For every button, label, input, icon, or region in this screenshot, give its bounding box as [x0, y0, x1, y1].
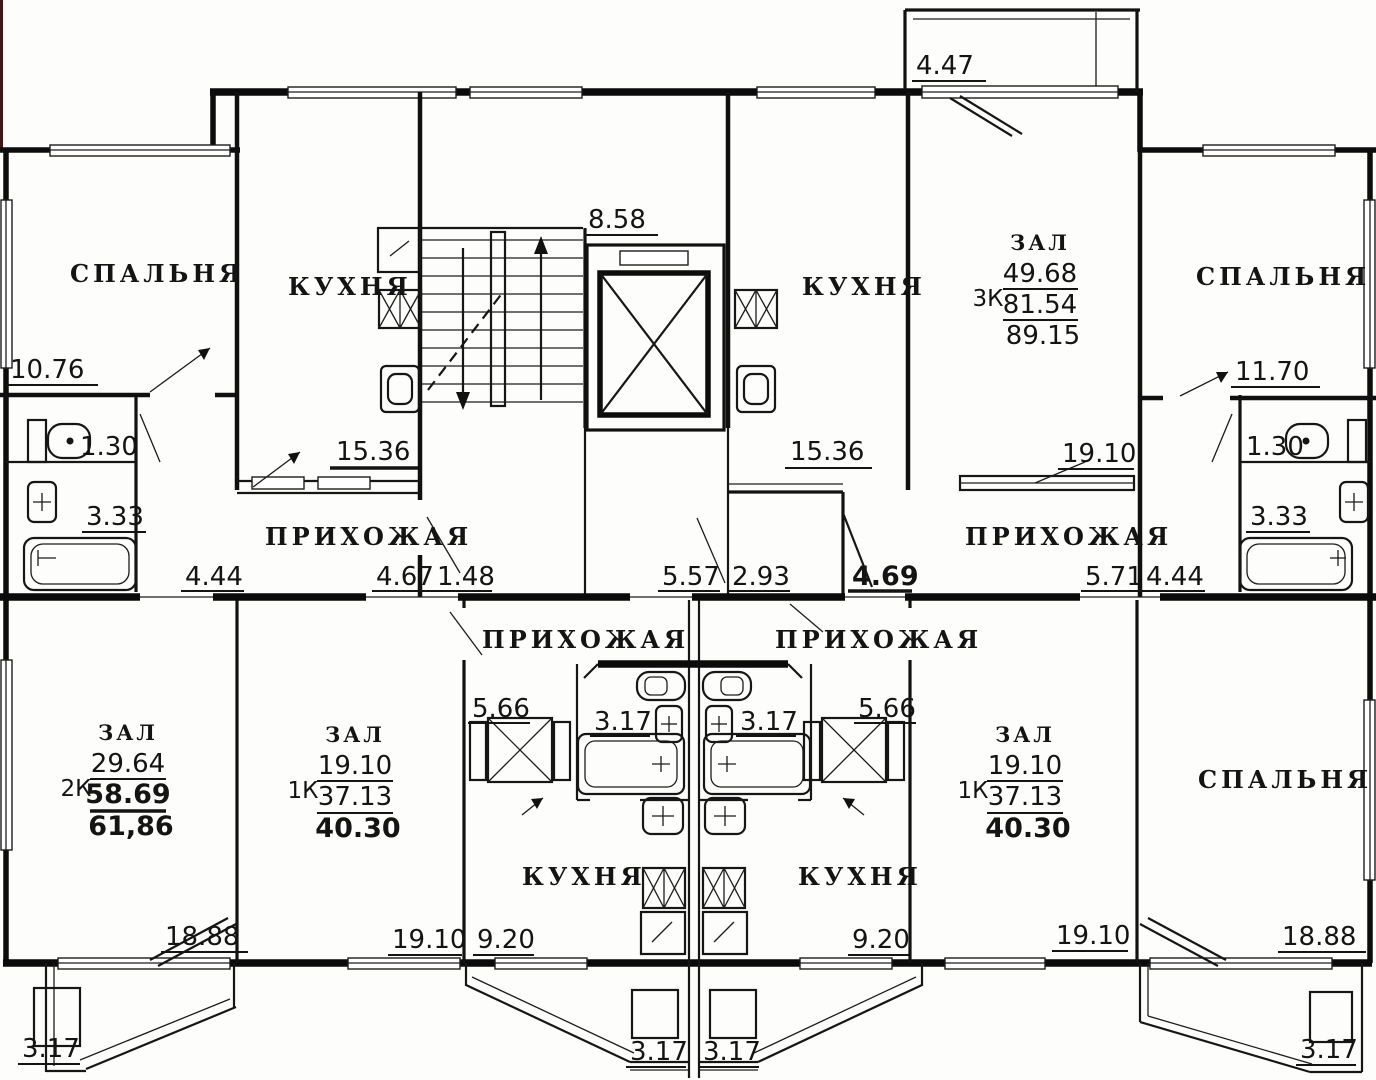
- dim-hall-tl-c: 1.48: [437, 562, 495, 592]
- dim-zal-1kl-width: 19.10: [392, 925, 466, 955]
- apt-1kl-room-name: ЗАЛ: [325, 722, 385, 747]
- dim-wc-tl: 1.30: [80, 432, 138, 462]
- bathtub-icon: [1240, 538, 1352, 590]
- apt-3k-type: 3К: [973, 286, 1004, 312]
- dim-bath-tr: 3.33: [1250, 502, 1308, 532]
- kitchen-fixtures-top-left: [378, 228, 421, 412]
- dim-hall-tl-b: 4.67: [376, 562, 434, 592]
- elevator-shaft: [587, 245, 724, 430]
- room-label-bedroom-top-left: СПАЛЬНЯ: [70, 259, 244, 288]
- apt-3k-living-area: 81.54: [1003, 290, 1077, 320]
- kitchen-fixtures-top-right: [735, 290, 777, 412]
- dim-bath-br: 3.17: [740, 707, 798, 737]
- dim-bath-bl: 3.17: [594, 707, 652, 737]
- apartment-3k-areas: ЗАЛ 49.68 3К 81.54 89.15: [973, 230, 1081, 351]
- apartment-1k-right-areas: ЗАЛ 19.10 1К 37.13 40.30: [958, 722, 1071, 844]
- room-label-hallway-top-left: ПРИХОЖАЯ: [265, 522, 472, 551]
- apt-3k-total-area: 89.15: [1006, 321, 1080, 351]
- dim-kitchen-br-width: 9.20: [852, 925, 910, 955]
- room-label-kitchen-top-right: КУХНЯ: [802, 272, 926, 301]
- dim-hall-c-a: 5.57: [662, 562, 720, 592]
- dim-closet-br: 5.66: [858, 694, 916, 724]
- room-label-hallway-bottom-left: ПРИХОЖАЯ: [482, 625, 689, 654]
- dim-balcony-br: 3.17: [1300, 1035, 1358, 1065]
- apt-1kr-room-name: ЗАЛ: [995, 722, 1055, 747]
- toilet-tank-icon: [1348, 420, 1366, 462]
- dim-kitchen-bl-width: 9.20: [477, 925, 535, 955]
- dim-hall-tl-a: 4.44: [185, 562, 243, 592]
- dim-bath-tl: 3.33: [86, 502, 144, 532]
- dim-bedroom-tl: 10.76: [10, 355, 84, 385]
- dim-zal-tr-width: 19.10: [1062, 439, 1136, 469]
- room-label-hallway-top-right: ПРИХОЖАЯ: [965, 522, 1172, 551]
- dim-balcony-bcr: 3.17: [703, 1037, 761, 1067]
- room-label-kitchen-top-left: КУХНЯ: [288, 272, 412, 301]
- room-label-kitchen-bottom-left: КУХНЯ: [522, 862, 646, 891]
- bathtub-icon: [24, 538, 136, 590]
- apt-3k-room-name: ЗАЛ: [1010, 230, 1070, 255]
- dim-stair-bay: 8.58: [588, 205, 646, 235]
- dim-hall-c-b: 2.93: [732, 562, 790, 592]
- floor-plan-page: СПАЛЬНЯ КУХНЯ КУХНЯ СПАЛЬНЯ ПРИХОЖАЯ ПРИ…: [0, 0, 1376, 1080]
- dim-balcony-bcl: 3.17: [630, 1037, 688, 1067]
- scan-edge-artifact: [0, 0, 3, 150]
- room-label-hallway-bottom-right: ПРИХОЖАЯ: [775, 625, 982, 654]
- dim-hall-tr-a: 5.71: [1085, 562, 1143, 592]
- dim-bedroom-tr: 11.70: [1235, 357, 1309, 387]
- dim-balcony-bl: 3.17: [22, 1034, 80, 1064]
- balcony-door-swing: [950, 98, 1012, 136]
- apartment-2k-areas: ЗАЛ 29.64 2К 58.69 61,86: [61, 720, 174, 842]
- apt-1kr-living-area: 37.13: [988, 782, 1062, 812]
- apt-2k-room-area: 29.64: [91, 749, 165, 779]
- apt-2k-total-area: 61,86: [88, 811, 173, 842]
- room-label-bedroom-top-right: СПАЛЬНЯ: [1196, 262, 1370, 291]
- stairwell: [422, 228, 583, 410]
- elevator-door: [620, 251, 688, 265]
- dim-hall-tr-b: 4.44: [1146, 562, 1204, 592]
- apt-1kl-type: 1К: [288, 778, 319, 804]
- closet-bottom-left: [470, 718, 570, 782]
- apt-1kl-living-area: 37.13: [318, 782, 392, 812]
- apt-2k-living-area: 58.69: [85, 779, 170, 810]
- apt-1kr-room-area: 19.10: [988, 751, 1062, 781]
- dim-wc-tr: 1.30: [1246, 432, 1304, 462]
- room-label-bedroom-bottom-right: СПАЛЬНЯ: [1198, 765, 1372, 794]
- balcony-window-box: [632, 990, 678, 1038]
- washbasin-icon: [637, 672, 685, 700]
- dim-top-balcony: 4.47: [916, 51, 974, 81]
- dim-kitchen-tl: 15.36: [336, 437, 410, 467]
- apt-1kr-total-area: 40.30: [985, 813, 1070, 844]
- apt-3k-room-area: 49.68: [1003, 259, 1077, 289]
- apt-2k-room-name: ЗАЛ: [98, 720, 158, 745]
- apt-1kr-type: 1К: [958, 778, 989, 804]
- room-label-kitchen-bottom-right: КУХНЯ: [798, 862, 922, 891]
- floor-plan-drawing: СПАЛЬНЯ КУХНЯ КУХНЯ СПАЛЬНЯ ПРИХОЖАЯ ПРИ…: [0, 0, 1376, 1080]
- toilet-tank-icon: [28, 420, 46, 462]
- dim-closet-bl: 5.66: [472, 694, 530, 724]
- dim-kitchen-tr: 15.36: [790, 437, 864, 467]
- apartment-1k-left-areas: ЗАЛ 19.10 1К 37.13 40.30: [288, 722, 401, 844]
- washbasin-icon: [703, 672, 751, 700]
- dim-bedroom-br-width: 18.88: [1282, 922, 1356, 952]
- balcony-window-box: [710, 990, 756, 1038]
- dim-storage-tr: 4.69: [852, 561, 919, 592]
- apt-1kl-total-area: 40.30: [315, 813, 400, 844]
- closet-bottom-right: [804, 718, 904, 782]
- apt-1kl-room-area: 19.10: [318, 751, 392, 781]
- dim-zal-bl-width: 18.88: [165, 922, 239, 952]
- dim-zal-1kr-width: 19.10: [1056, 921, 1130, 951]
